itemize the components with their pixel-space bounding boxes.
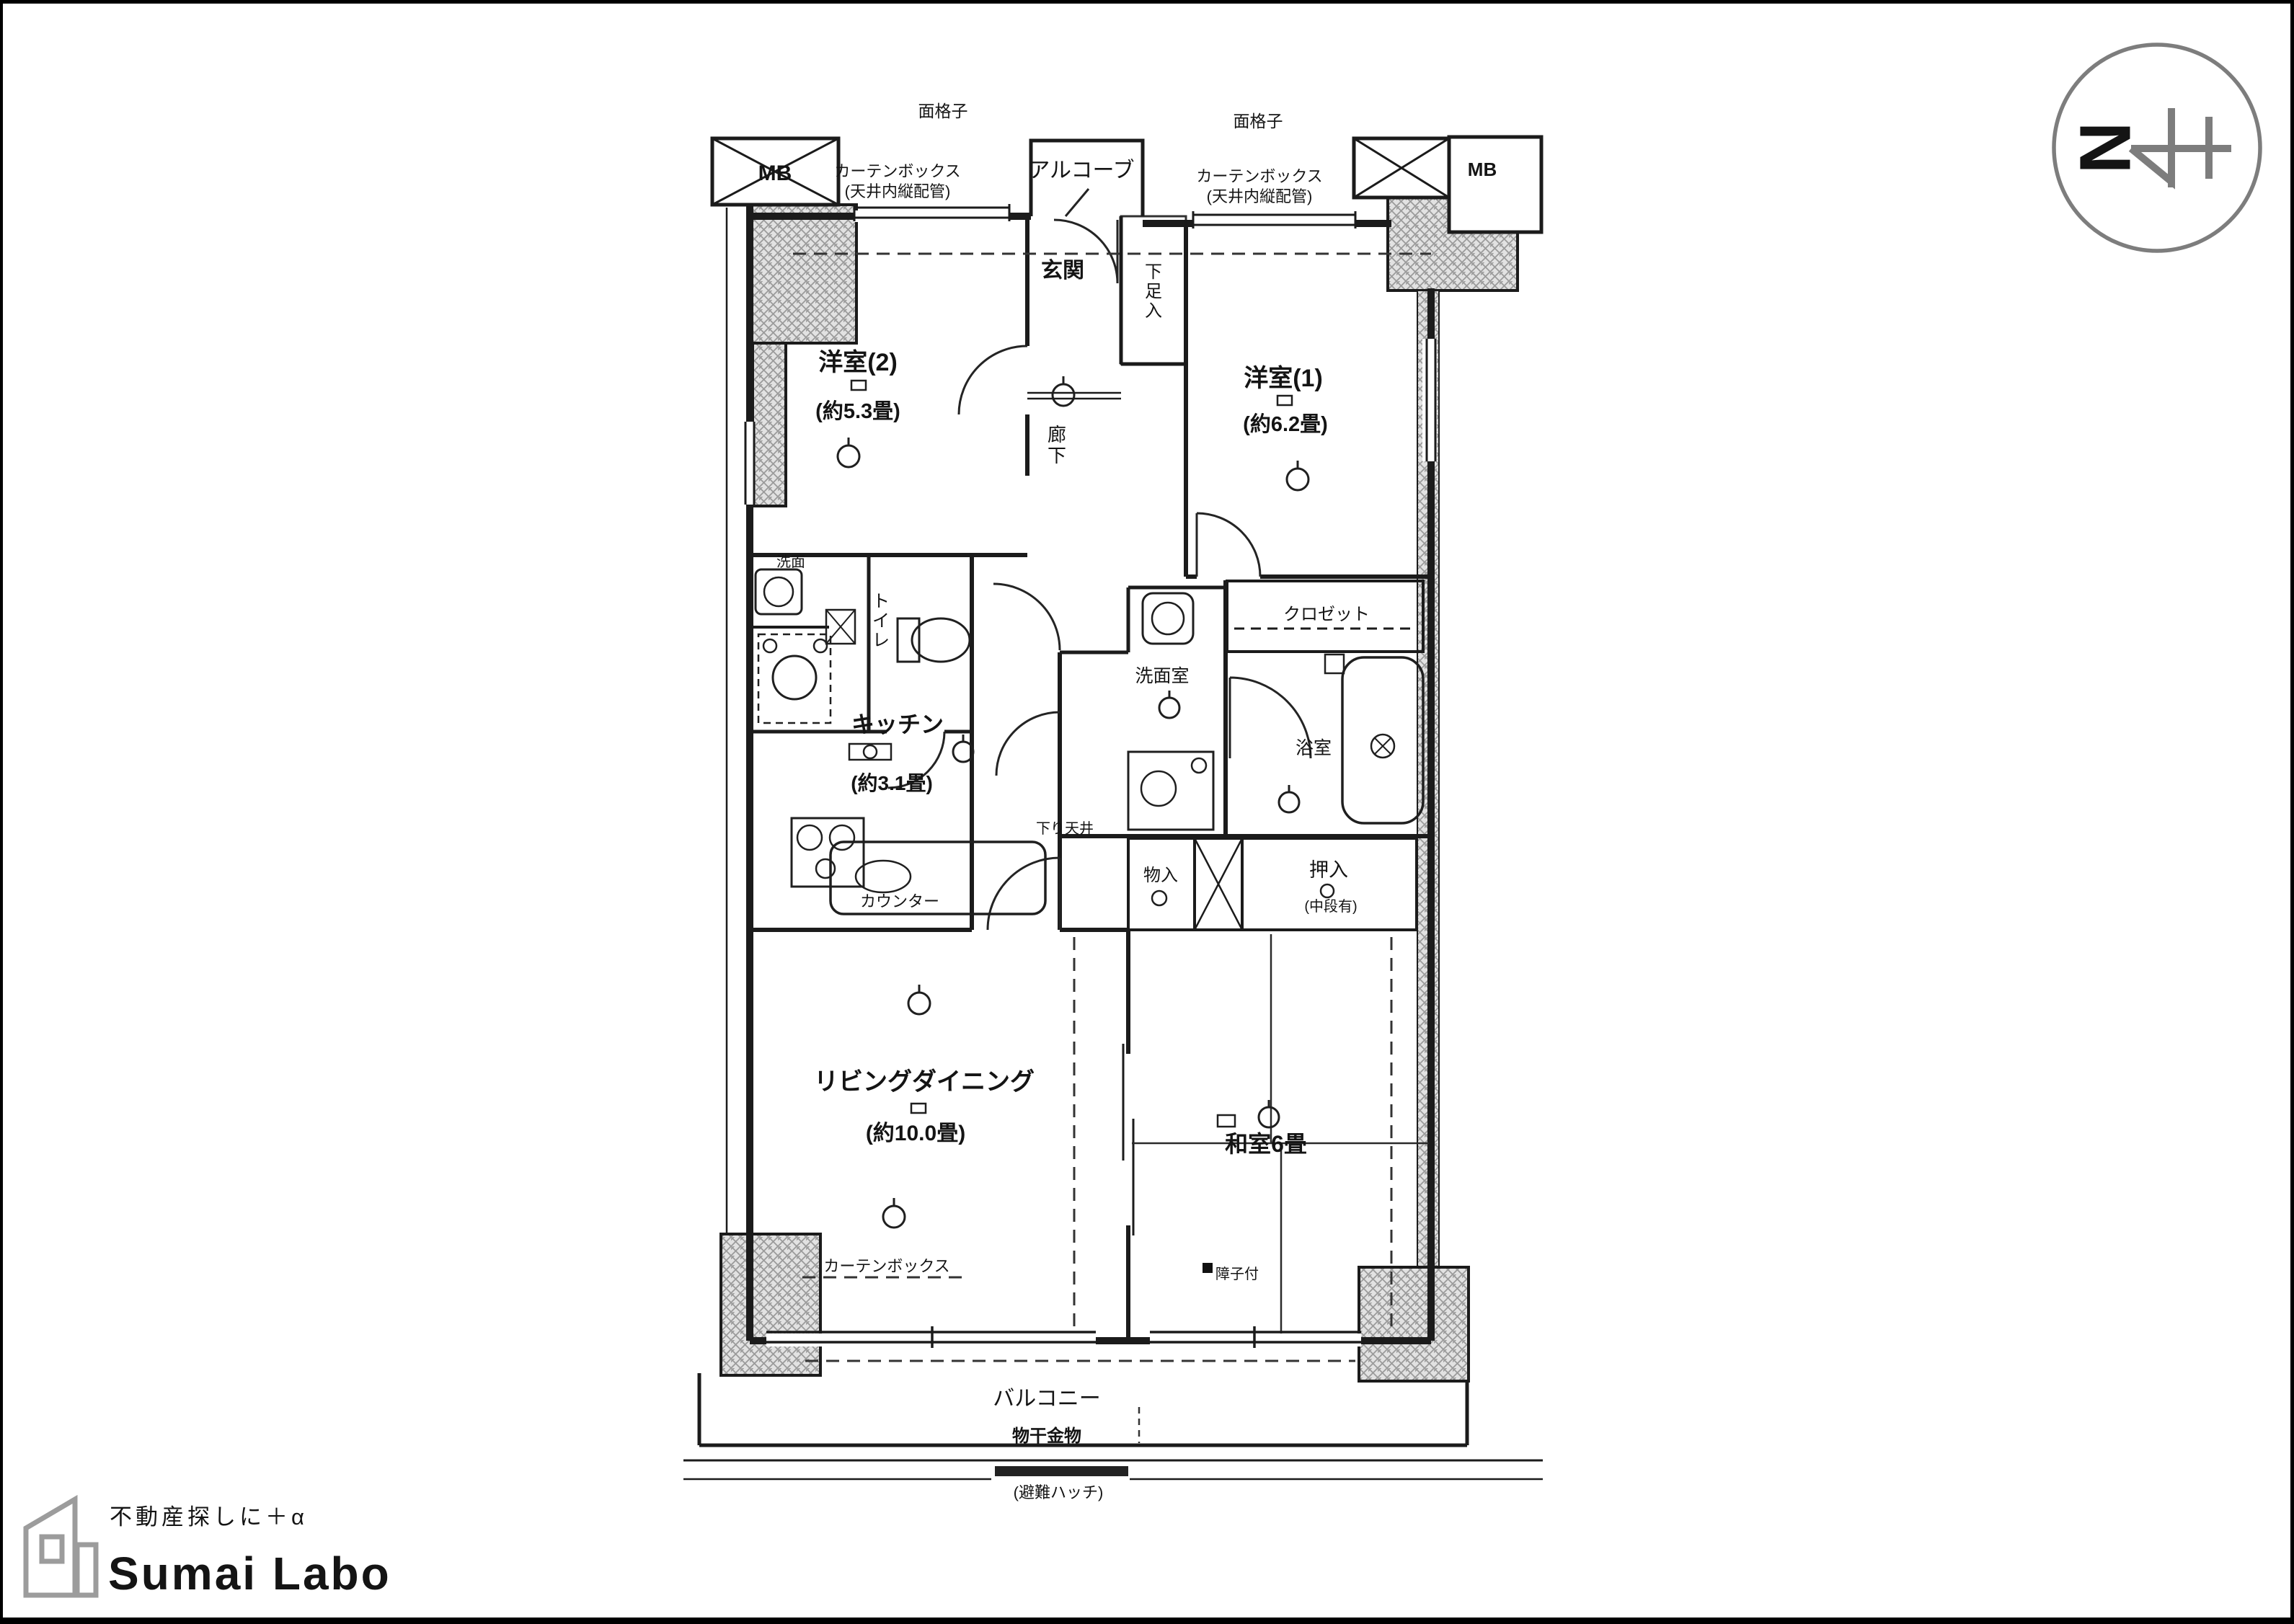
doors (888, 189, 1311, 930)
japanese-room-label: 和室6畳 (1225, 1131, 1307, 1157)
storage-small-label: 物入 (1143, 866, 1178, 885)
logo: 不動産探しに＋α Sumai Labo (26, 1499, 391, 1599)
balcony-structure (683, 1373, 1543, 1479)
oshiire-label: 押入 (1309, 859, 1348, 881)
floorplan-canvas: MB MB 面格子 面格子 カーテンボックス (天井内縦配管) カーテンボックス… (0, 0, 2294, 1624)
curtainbox-right-note: (天井内縦配管) (1207, 187, 1313, 205)
counter-label: カウンター (860, 892, 939, 910)
logo-brand: Sumai Labo (108, 1548, 391, 1599)
curtainbox-left-label: カーテンボックス (834, 162, 960, 180)
curtainbox-right-label: カーテンボックス (1196, 167, 1322, 185)
bathtub (1325, 655, 1423, 823)
entrance-label: 玄関 (1041, 258, 1084, 283)
western1-size: (約6.2畳) (1243, 412, 1328, 436)
western2-name: 洋室(2) (818, 348, 898, 376)
mb-right-label: MB (1468, 159, 1497, 180)
western1-name: 洋室(1) (1244, 364, 1323, 392)
curtainbox-left-note: (天井内縦配管) (845, 182, 951, 200)
floorplan-page: MB MB 面格子 面格子 カーテンボックス (天井内縦配管) カーテンボックス… (0, 0, 2294, 1624)
western2-size: (約5.3畳) (815, 399, 900, 423)
logo-tagline: 不動産探しに＋α (110, 1504, 308, 1530)
toilet-fixture (898, 618, 970, 662)
kitchen-size: (約3.1畳) (851, 771, 933, 794)
hallway-label: 廊下 (1048, 424, 1066, 466)
house-icon (26, 1499, 96, 1595)
laundry-pan-washroom (1128, 752, 1213, 830)
balcony-label: バルコニー (993, 1387, 1100, 1411)
grille-left-label: 面格子 (918, 102, 968, 120)
bathroom-label: 浴室 (1296, 738, 1332, 758)
living-size: (約10.0畳) (866, 1122, 965, 1145)
stove-fixture (792, 818, 864, 887)
curtainbox-living-label: カーテンボックス (823, 1257, 949, 1275)
alcove-label: アルコーブ (1028, 159, 1134, 182)
living-name: リビングダイニング (814, 1068, 1035, 1096)
mb-box-right (1354, 137, 1541, 232)
basin-fixture (756, 569, 855, 644)
hatch-label: (避難ハッチ) (1014, 1483, 1104, 1501)
laundry-pan-left (758, 634, 831, 723)
kitchen-name: キッチン (851, 711, 944, 737)
washroom-basin (1143, 593, 1193, 644)
toilet-label: トイレ (872, 592, 890, 650)
closet-label: クロゼット (1283, 605, 1370, 624)
mb-left-label: MB (758, 161, 792, 185)
washroom-label: 洗面室 (1135, 666, 1189, 686)
shoji-label: 障子付 (1215, 1266, 1259, 1282)
compass-north-arrow-icon (2131, 108, 2231, 187)
compass: N (2054, 45, 2260, 251)
laundry-hardware-label: 物干金物 (1012, 1426, 1081, 1446)
basin-label: 洗面 (776, 554, 805, 570)
grille-right-label: 面格子 (1234, 112, 1283, 130)
shoe-cabinet-label: 下足入 (1145, 262, 1162, 321)
lowered-ceiling-label: 下り天井 (1036, 820, 1094, 837)
page-border (0, 0, 2294, 1624)
oshiire-note: (中段有) (1304, 898, 1357, 915)
ceiling-lights (838, 376, 1308, 1228)
